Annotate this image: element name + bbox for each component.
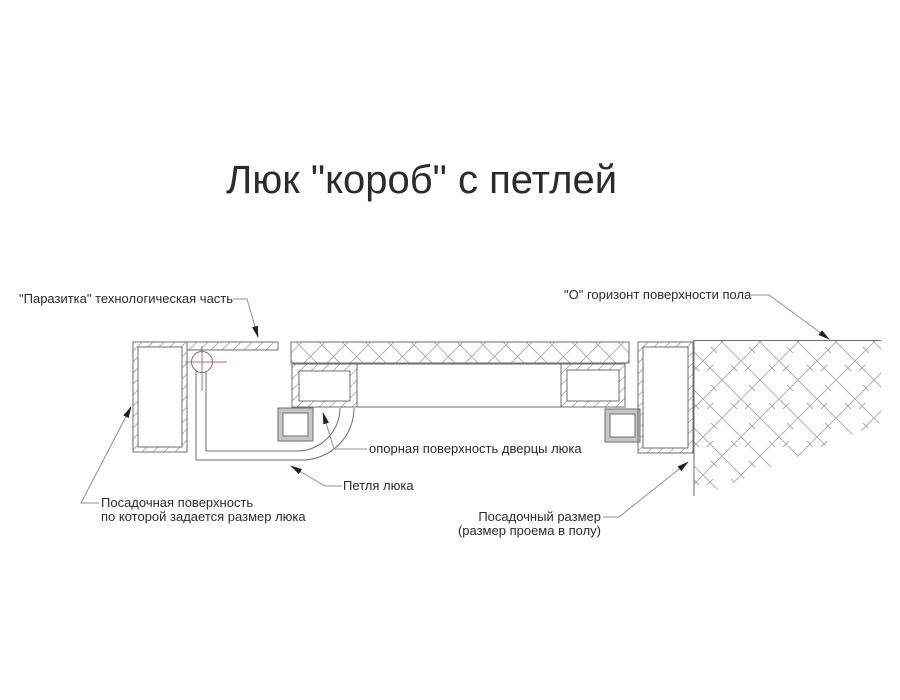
left-frame-profile <box>133 342 187 452</box>
diagram-page: Люк "короб" с петлей "Паразитка" техноло… <box>0 0 900 700</box>
right-seal-square <box>605 409 640 442</box>
label-support-surface: опорная поверхность дверцы люка <box>369 442 582 456</box>
label-hinge: Петля люка <box>343 479 414 493</box>
leader-seating-size <box>603 462 688 517</box>
diagram-canvas <box>0 0 900 700</box>
label-seating-size-line1: Посадочный размер <box>420 510 601 524</box>
left-seal-square <box>278 408 313 441</box>
page-title: Люк "короб" с петлей <box>226 158 676 203</box>
leader-support-surface <box>323 413 367 449</box>
label-seating-surface: Посадочная поверхность по которой задает… <box>101 496 306 524</box>
label-seating-size: Посадочный размер (размер проема в полу) <box>420 510 601 538</box>
label-seating-size-line2: (размер проема в полу) <box>420 524 601 538</box>
leader-parasitka <box>233 299 258 337</box>
label-seating-surface-line2: по которой задается размер люка <box>101 510 306 524</box>
leader-hinge <box>291 466 342 486</box>
hatch-door-panel <box>291 342 629 407</box>
label-floor-horizon: "О" горизонт поверхности пола <box>564 288 751 302</box>
label-seating-surface-line1: Посадочная поверхность <box>101 496 306 510</box>
right-frame-profile <box>638 342 693 453</box>
parasitka-flange <box>187 342 278 350</box>
label-parasitka: "Паразитка" технологическая часть <box>19 292 233 306</box>
leader-horizon <box>751 295 829 339</box>
leader-seating-surface <box>81 407 131 503</box>
concrete-floor-mass <box>693 341 881 497</box>
